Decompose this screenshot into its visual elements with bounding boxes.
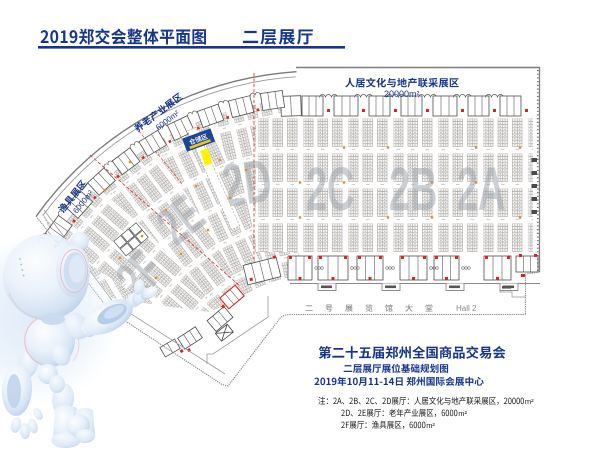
- svg-text:m²: m²: [458, 409, 467, 418]
- svg-text:2B: 2B: [389, 155, 437, 224]
- svg-text:m²: m²: [426, 421, 435, 430]
- svg-text:Hall 2: Hall 2: [456, 304, 477, 313]
- svg-text:2A: 2A: [457, 155, 505, 224]
- svg-text:m²: m²: [525, 397, 534, 406]
- svg-text:20000m²: 20000m²: [384, 89, 420, 99]
- svg-text:2C: 2C: [306, 155, 354, 224]
